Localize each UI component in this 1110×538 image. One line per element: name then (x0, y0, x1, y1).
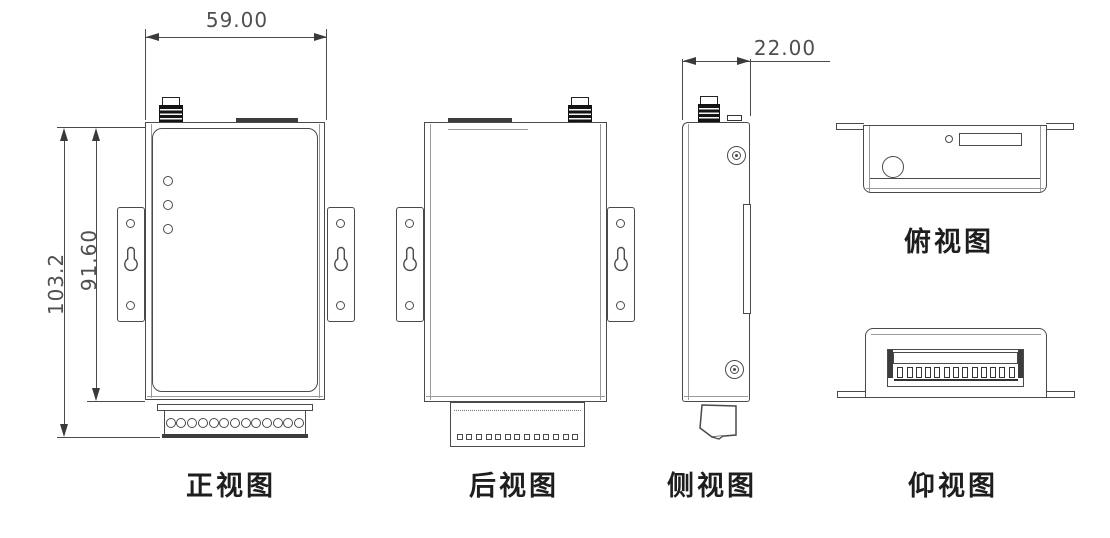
terminal-tooth (962, 367, 968, 378)
terminal-end-bracket (1018, 350, 1023, 378)
terminal-tooth (925, 367, 931, 378)
bottom-view-label: 仰视图 (878, 464, 1028, 503)
terminal-tooth (934, 367, 940, 378)
terminal-tooth (972, 367, 978, 378)
terminal-tooth (944, 367, 950, 378)
terminal-top-band (893, 352, 1018, 364)
bottom-view: 仰视图 (0, 0, 1110, 538)
panel-fold-line (871, 334, 1041, 335)
terminal-tooth (990, 367, 996, 378)
terminal-tooth (916, 367, 922, 378)
terminal-tooth (953, 367, 959, 378)
terminal-tooth (907, 367, 913, 378)
bottom-flange-right (1047, 391, 1075, 398)
bottom-flange-left (837, 391, 865, 398)
terminal-tooth (999, 367, 1005, 378)
terminal-tooth (897, 367, 903, 378)
terminal-tooth (981, 367, 987, 378)
terminal-tooth (1009, 367, 1015, 378)
bottom-terminal-teeth (894, 364, 1018, 381)
engineering-drawing: 59.00 103.2 91.60 (0, 0, 1110, 538)
